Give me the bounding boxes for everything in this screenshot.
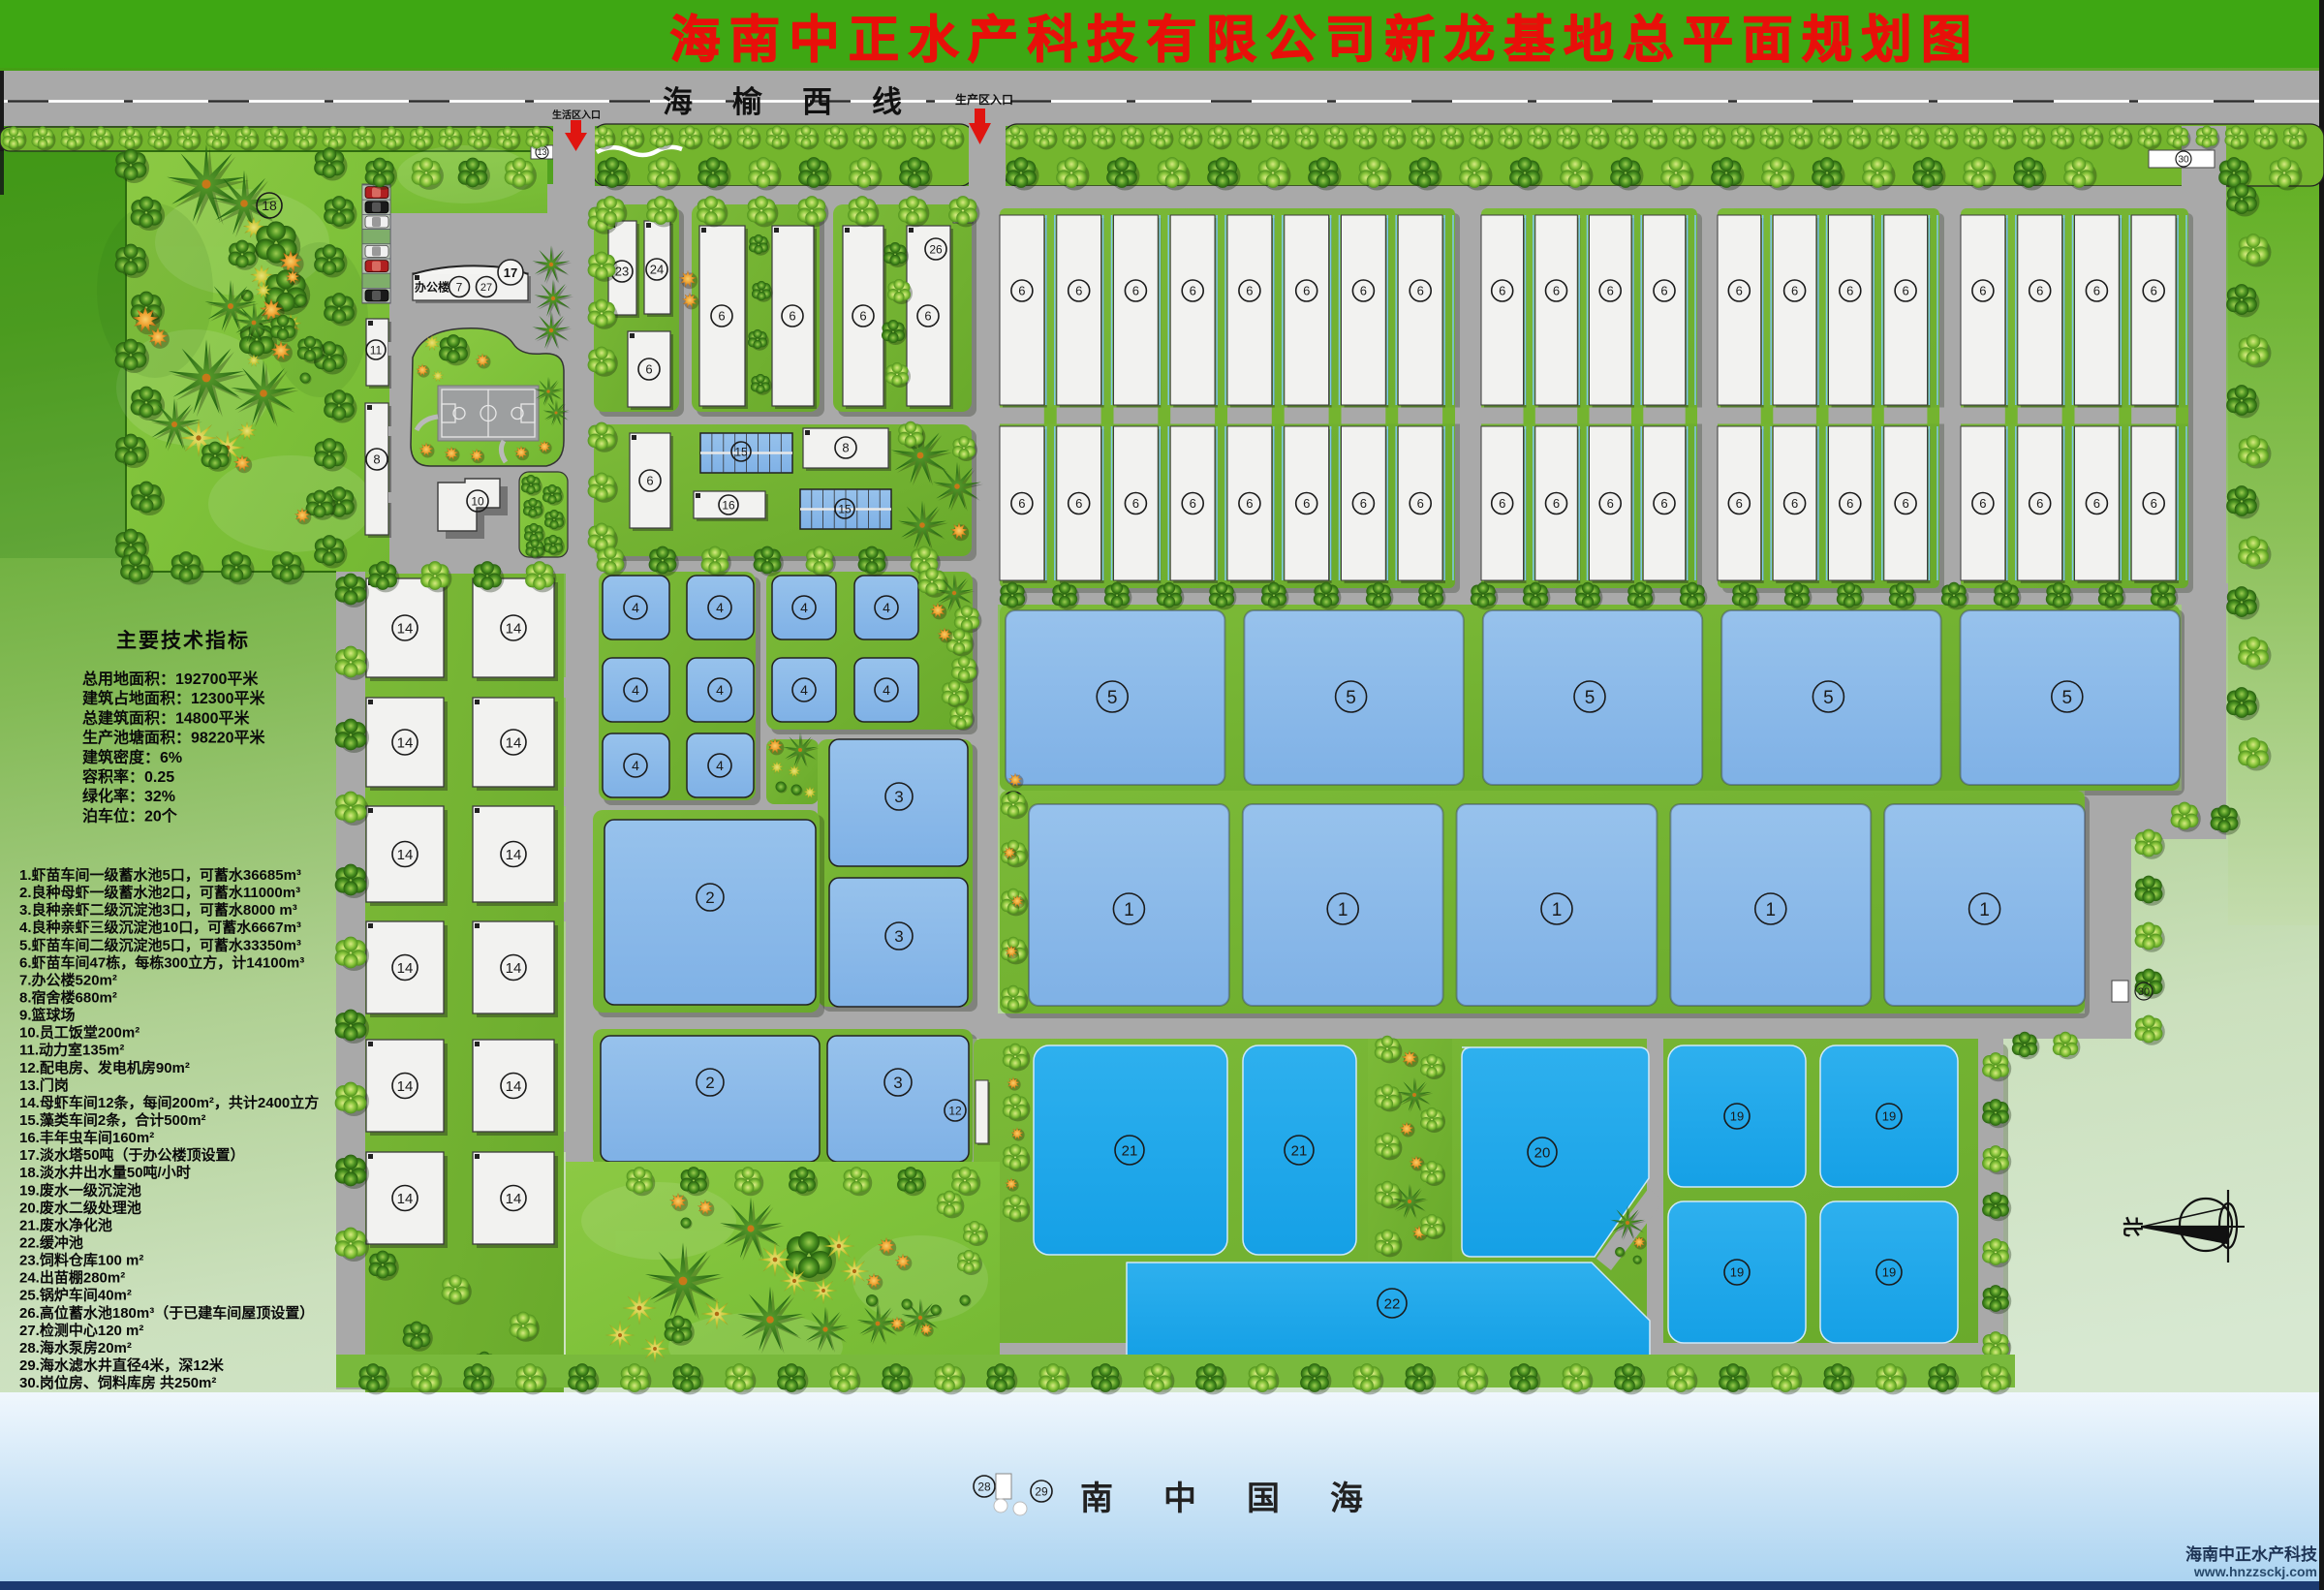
svg-text:6: 6 [1190,284,1196,298]
svg-text:26: 26 [929,242,943,256]
svg-text:6: 6 [1303,284,1310,298]
svg-text:1: 1 [1979,900,1990,920]
svg-text:27.检测中心120 m²: 27.检测中心120 m² [19,1322,143,1339]
svg-text:6: 6 [1417,496,1424,511]
svg-text:容积率：0.25: 容积率：0.25 [81,767,174,786]
svg-text:6: 6 [1075,284,1082,298]
svg-text:14: 14 [506,1078,522,1095]
svg-text:6: 6 [2151,284,2157,298]
svg-text:6: 6 [1018,496,1025,511]
svg-text:19: 19 [1730,1265,1744,1280]
svg-text:6: 6 [924,309,931,324]
svg-text:6: 6 [646,474,653,488]
svg-text:16.丰年虫车间160m²: 16.丰年虫车间160m² [19,1129,154,1146]
svg-text:6: 6 [1607,496,1614,511]
svg-text:6: 6 [1417,284,1424,298]
svg-text:30.岗位房、饲料库房 共250m²: 30.岗位房、饲料库房 共250m² [19,1374,216,1391]
svg-text:生产区入口: 生产区入口 [955,92,1013,107]
svg-text:6: 6 [1607,284,1614,298]
svg-text:19: 19 [1730,1109,1744,1124]
svg-text:14: 14 [397,734,414,751]
svg-text:6: 6 [789,309,795,324]
svg-text:27: 27 [480,282,492,294]
svg-text:6: 6 [1499,496,1505,511]
svg-text:5: 5 [2062,688,2073,708]
svg-text:6: 6 [1360,284,1367,298]
svg-text:6: 6 [1075,496,1082,511]
svg-text:南中国海: 南中国海 [1080,1481,1413,1517]
svg-text:8: 8 [373,452,380,467]
svg-text:14: 14 [506,847,522,863]
svg-text:14: 14 [397,1191,414,1207]
svg-text:6: 6 [2093,496,2100,511]
svg-text:北: 北 [2121,1217,2143,1237]
svg-text:6: 6 [1736,284,1743,298]
svg-text:21: 21 [1291,1142,1308,1159]
svg-text:4: 4 [883,600,890,615]
svg-text:6: 6 [2093,284,2100,298]
svg-text:4: 4 [632,682,639,698]
svg-text:28: 28 [977,1480,991,1493]
svg-text:11.动力室135m²: 11.动力室135m² [19,1042,124,1059]
svg-text:6: 6 [1553,284,1560,298]
svg-text:5.虾苗车间二级沉淀池5口，可蓄水33350m³: 5.虾苗车间二级沉淀池5口，可蓄水33350m³ [19,936,301,953]
svg-text:13.门岗: 13.门岗 [19,1076,69,1094]
svg-text:6: 6 [2151,496,2157,511]
svg-text:18: 18 [262,198,277,213]
svg-text:28.海水泵房20m²: 28.海水泵房20m² [19,1339,132,1356]
svg-text:6: 6 [1246,496,1253,511]
svg-text:1: 1 [1338,900,1348,920]
svg-text:17: 17 [504,265,517,280]
svg-text:6: 6 [1660,284,1667,298]
svg-text:30: 30 [2178,155,2189,166]
svg-text:6: 6 [1246,284,1253,298]
svg-text:6: 6 [1979,284,1986,298]
svg-text:生产池塘面积：98220平米: 生产池塘面积：98220平米 [82,729,265,747]
svg-text:总建筑面积：14800平米: 总建筑面积：14800平米 [82,708,250,727]
svg-text:4: 4 [716,758,724,773]
svg-text:1: 1 [1766,900,1777,920]
svg-text:15.藻类车间2条，合计500m²: 15.藻类车间2条，合计500m² [19,1111,206,1129]
svg-text:24: 24 [650,263,664,277]
svg-text:建筑密度：6%: 建筑密度：6% [82,748,182,766]
svg-text:24.出苗棚280m²: 24.出苗棚280m² [19,1269,125,1287]
svg-text:7: 7 [456,280,463,294]
svg-text:6: 6 [1791,284,1798,298]
svg-text:17.淡水塔50吨（于办公楼顶设置）: 17.淡水塔50吨（于办公楼顶设置） [19,1146,245,1164]
svg-text:6: 6 [1791,496,1798,511]
svg-text:14: 14 [506,960,522,977]
svg-text:6: 6 [2036,284,2043,298]
svg-text:5: 5 [1107,688,1118,708]
svg-text:23.饲料仓库100 m²: 23.饲料仓库100 m² [19,1252,143,1269]
svg-text:6: 6 [1736,496,1743,511]
svg-text:6: 6 [1979,496,1986,511]
svg-text:6: 6 [645,362,652,377]
svg-text:6: 6 [1846,496,1853,511]
svg-text:10: 10 [471,494,484,508]
svg-text:6: 6 [1018,284,1025,298]
svg-text:4: 4 [632,600,639,615]
svg-text:20: 20 [1534,1144,1551,1161]
svg-text:5: 5 [1823,688,1834,708]
svg-text:海南中正水产科技有限公司新龙基地总平面规划图: 海南中正水产科技有限公司新龙基地总平面规划图 [669,13,1980,69]
svg-text:25.锅炉车间40m²: 25.锅炉车间40m² [19,1287,132,1304]
svg-text:6: 6 [1303,496,1310,511]
svg-text:5: 5 [1585,688,1596,708]
svg-text:10.员工饭堂200m²: 10.员工饭堂200m² [19,1024,139,1042]
svg-text:2.良种母虾一级蓄水池2口，可蓄水11000m³: 2.良种母虾一级蓄水池2口，可蓄水11000m³ [19,884,300,901]
svg-text:建筑占地面积：12300平米: 建筑占地面积：12300平米 [82,689,265,707]
svg-text:14: 14 [397,847,414,863]
svg-text:6: 6 [718,309,725,324]
svg-text:6: 6 [859,309,866,324]
svg-text:6: 6 [1902,284,1908,298]
svg-text:6: 6 [1190,496,1196,511]
svg-text:海榆西线: 海榆西线 [663,85,942,119]
svg-text:9.篮球场: 9.篮球场 [19,1007,76,1024]
svg-text:6: 6 [1132,284,1139,298]
svg-text:6: 6 [1553,496,1560,511]
svg-text:5: 5 [1346,688,1356,708]
svg-text:15: 15 [838,502,852,515]
svg-text:30: 30 [2138,986,2150,998]
svg-text:办公楼: 办公楼 [415,280,449,295]
svg-text:主要技术指标: 主要技术指标 [116,629,250,652]
svg-text:4.良种亲虾三级沉淀池10口，可蓄水6667m³: 4.良种亲虾三级沉淀池10口，可蓄水6667m³ [19,919,301,936]
svg-text:14: 14 [397,960,414,977]
svg-text:www.hnzzsckj.com: www.hnzzsckj.com [2193,1564,2317,1579]
svg-text:6: 6 [1660,496,1667,511]
svg-text:12: 12 [948,1104,962,1117]
svg-text:19.废水一级沉淀池: 19.废水一级沉淀池 [19,1181,141,1199]
svg-text:3.良种亲虾二级沉淀池3口，可蓄水8000 m³: 3.良种亲虾二级沉淀池3口，可蓄水8000 m³ [19,901,297,919]
svg-text:4: 4 [800,682,808,698]
svg-text:2: 2 [705,1074,714,1092]
svg-text:14: 14 [397,1078,414,1095]
svg-text:4: 4 [883,682,890,698]
svg-text:6: 6 [1499,284,1505,298]
svg-text:海南中正水产科技: 海南中正水产科技 [2185,1544,2318,1564]
svg-text:21: 21 [1122,1142,1138,1159]
svg-text:19: 19 [1882,1109,1896,1124]
svg-text:3: 3 [894,927,903,946]
svg-text:2: 2 [705,889,714,907]
svg-text:15: 15 [734,445,748,458]
svg-text:4: 4 [716,682,724,698]
svg-text:18.淡水井出水量50吨/小时: 18.淡水井出水量50吨/小时 [19,1164,191,1181]
svg-text:22: 22 [1384,1295,1401,1312]
svg-text:1.虾苗车间一级蓄水池5口，可蓄水36685m³: 1.虾苗车间一级蓄水池5口，可蓄水36685m³ [19,866,301,884]
svg-text:1: 1 [1552,900,1563,920]
svg-text:20.废水二级处理池: 20.废水二级处理池 [19,1199,141,1216]
svg-text:22.缓冲池: 22.缓冲池 [19,1234,83,1252]
svg-text:14: 14 [506,734,522,751]
svg-text:总用地面积：192700平米: 总用地面积：192700平米 [82,670,259,688]
svg-text:14: 14 [397,620,414,637]
svg-text:16: 16 [722,498,735,512]
svg-text:6.虾苗车间47栋，每栋300立方，计14100m³: 6.虾苗车间47栋，每栋300立方，计14100m³ [19,953,304,971]
svg-text:绿化率：32%: 绿化率：32% [82,787,175,805]
svg-text:7.办公楼520m²: 7.办公楼520m² [19,971,117,988]
svg-text:6: 6 [2036,496,2043,511]
svg-text:21.废水净化池: 21.废水净化池 [19,1216,112,1233]
svg-text:8.宿舍楼680m²: 8.宿舍楼680m² [19,989,117,1007]
svg-text:生活区入口: 生活区入口 [552,109,601,121]
svg-text:11: 11 [370,343,383,357]
svg-text:4: 4 [800,600,808,615]
svg-text:14: 14 [506,1191,522,1207]
svg-text:6: 6 [1846,284,1853,298]
svg-text:4: 4 [632,758,639,773]
svg-text:12.配电房、发电机房90m²: 12.配电房、发电机房90m² [19,1059,190,1076]
svg-text:26.高位蓄水池180m³（于已建车间屋顶设置）: 26.高位蓄水池180m³（于已建车间屋顶设置） [19,1304,314,1322]
svg-text:8: 8 [842,441,849,455]
svg-text:29.海水滤水井直径4米，深12米: 29.海水滤水井直径4米，深12米 [19,1356,225,1374]
svg-text:19: 19 [1882,1265,1896,1280]
svg-text:6: 6 [1132,496,1139,511]
svg-text:4: 4 [716,600,724,615]
svg-text:14: 14 [506,620,522,637]
svg-text:6: 6 [1360,496,1367,511]
svg-text:14.母虾车间12条，每间200m²，共计2400立方: 14.母虾车间12条，每间200m²，共计2400立方 [19,1094,319,1111]
svg-text:29: 29 [1035,1484,1048,1498]
svg-text:泊车位：20个: 泊车位：20个 [82,806,178,825]
svg-text:3: 3 [894,788,903,806]
svg-text:1: 1 [1124,900,1134,920]
svg-text:3: 3 [893,1074,902,1092]
svg-text:6: 6 [1902,496,1908,511]
